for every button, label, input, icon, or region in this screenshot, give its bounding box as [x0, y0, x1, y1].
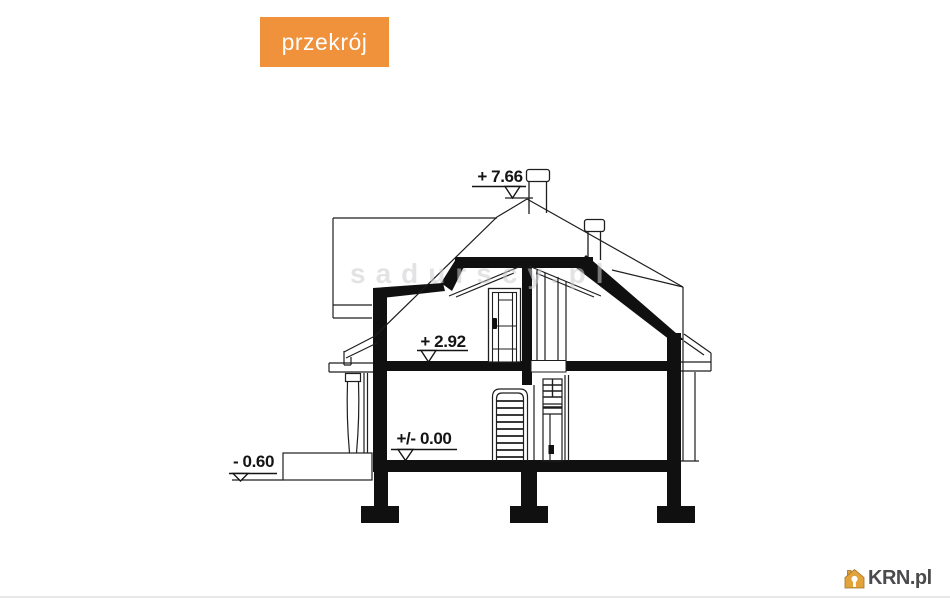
- krn-logo: KRN.pl: [843, 565, 932, 591]
- porch-roof: [344, 336, 377, 358]
- porch-column: [346, 373, 368, 453]
- elevation-label-ridge: + 7.66: [473, 167, 527, 187]
- footer-divider: [0, 596, 950, 598]
- left-footing: [361, 506, 399, 523]
- vent-stack-body: [588, 232, 601, 261]
- stairwell-opening: [531, 361, 566, 373]
- ground-slab: [373, 460, 681, 472]
- left-wall: [373, 293, 387, 471]
- floor-slab-attic-level: [373, 361, 681, 371]
- chimney: [527, 170, 550, 215]
- krn-logo-text: KRN.pl: [868, 567, 932, 590]
- left-pier: [374, 471, 388, 506]
- staircase: [493, 389, 528, 461]
- center-pier: [521, 472, 537, 506]
- terrace-slab: [283, 453, 372, 480]
- watermark: sadurscy.pl: [350, 258, 614, 290]
- center-footing: [510, 506, 548, 523]
- marker-triangle-ground: [398, 450, 413, 461]
- right-background-wall: [681, 372, 699, 461]
- right-far-eave: [612, 270, 683, 287]
- marker-triangle-attic: [421, 351, 436, 363]
- marker-triangle-ridge: [505, 187, 520, 199]
- interior-door-handle: [549, 445, 555, 454]
- right-eave: [681, 334, 711, 371]
- right-pier: [667, 471, 681, 506]
- right-wall: [667, 333, 681, 471]
- elevation-label-attic-floor: + 2.92: [417, 332, 469, 352]
- porch-and-eaves: [232, 334, 711, 480]
- vent-stack: [585, 220, 605, 261]
- attic-door-handle: [493, 318, 498, 329]
- chimney-cap: [527, 170, 550, 182]
- attic-door: [489, 289, 521, 363]
- elevation-label-terrace: - 0.60: [229, 452, 278, 472]
- vent-stack-cap: [585, 220, 605, 232]
- cross-section-drawing: [0, 0, 950, 607]
- elevation-label-ground-floor: +/- 0.00: [390, 429, 458, 449]
- krn-house-icon: [843, 567, 866, 590]
- ground-floor-details: [493, 375, 569, 461]
- cut-structure: [361, 255, 695, 523]
- right-footing: [657, 506, 695, 523]
